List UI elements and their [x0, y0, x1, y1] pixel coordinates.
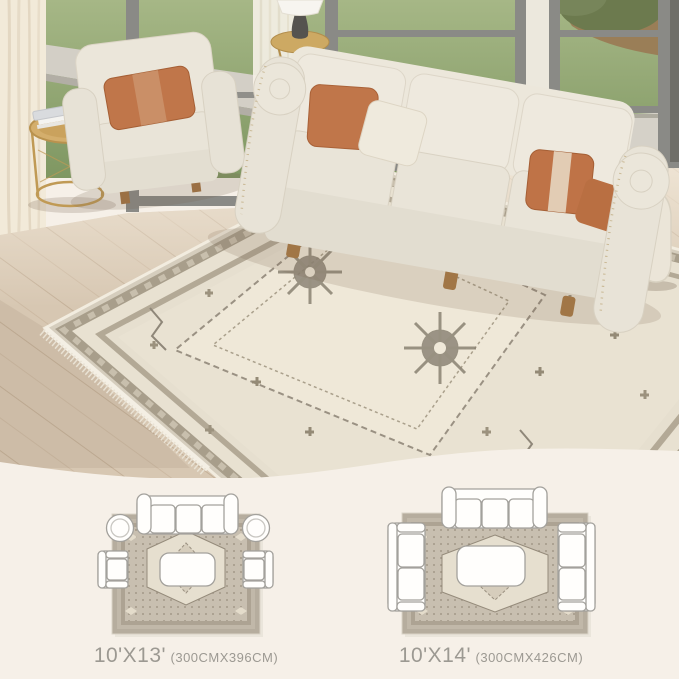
- diagram-coffee-table: [457, 546, 525, 586]
- metric-text: (300CMX426CM): [476, 650, 584, 665]
- diagram-armchair-right: [243, 551, 273, 588]
- size-option-10x14: 10'X14' (300CMX426CM): [362, 479, 620, 668]
- lamp-base: [292, 13, 309, 39]
- size-diagram-10x14: [362, 479, 620, 641]
- diagram-loveseat-right: [558, 523, 595, 611]
- size-text: 10'X14': [399, 644, 471, 667]
- size-label-10x14: 10'X14' (300CMX426CM): [362, 644, 620, 668]
- diagram-coffee-table: [160, 553, 215, 586]
- size-diagram-10x13: [57, 479, 315, 641]
- living-room-photo: [0, 0, 679, 478]
- diagram-armchair-left: [98, 551, 128, 588]
- lamp-shade: [277, 0, 323, 16]
- size-option-10x13: 10'X13' (300CMX396CM): [57, 479, 315, 668]
- metric-text: (300CMX396CM): [171, 650, 279, 665]
- diagram-loveseat-left: [388, 523, 425, 611]
- diagram-sofa: [137, 494, 238, 534]
- size-text: 10'X13': [94, 644, 166, 667]
- diagram-sofa: [442, 487, 547, 528]
- size-label-10x13: 10'X13' (300CMX396CM): [57, 644, 315, 668]
- product-image: 10'X13' (300CMX396CM): [0, 0, 679, 679]
